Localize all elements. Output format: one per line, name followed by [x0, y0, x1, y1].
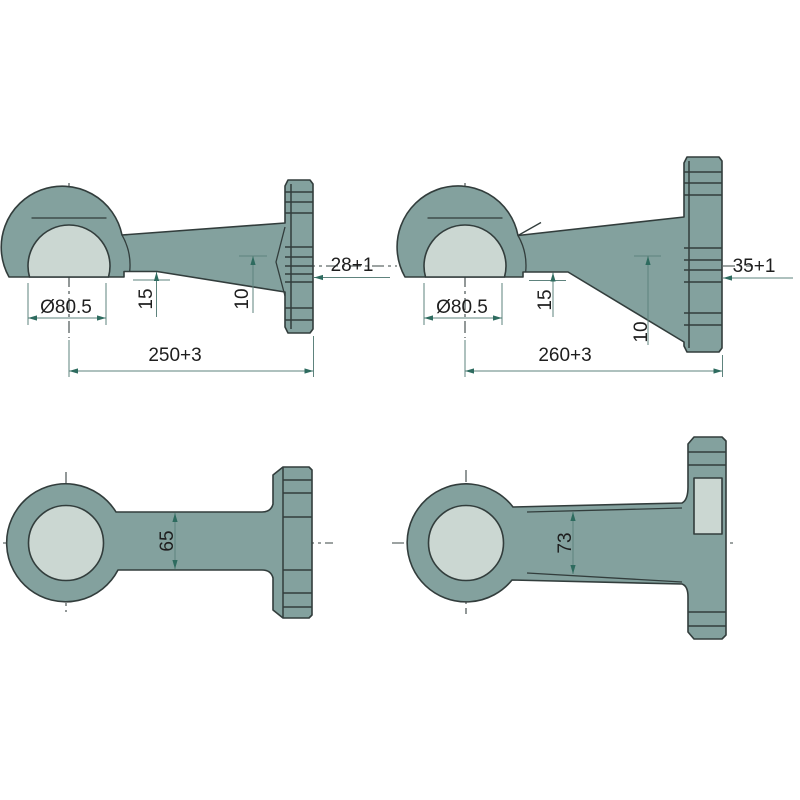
dim-label-15: 15 [136, 288, 157, 309]
flange-window-face [694, 478, 722, 534]
dimension-overall-length: 250+3 [69, 340, 314, 377]
dim-label-shaft-width: 65 [157, 530, 178, 551]
dim-label-shaft-width: 73 [555, 532, 576, 553]
dim-label-10: 10 [631, 321, 652, 342]
view-plan-a: 65 [3, 467, 333, 618]
arrow-left [28, 315, 37, 320]
bore-face [429, 506, 504, 581]
view-plan-b: 73 [392, 437, 736, 639]
arrow-left [424, 315, 433, 320]
dim-label-10: 10 [232, 288, 253, 309]
dimension-height-15: 15 [529, 273, 566, 318]
arrow-left [69, 368, 78, 373]
dimension-bore-diameter: Ø80.5 [424, 283, 502, 325]
arrow-right [97, 315, 106, 320]
dimension-flange-thickness: 35+1 [723, 256, 794, 377]
arrow-right [305, 368, 314, 373]
arrow-left [723, 275, 732, 280]
dim-label-diameter: Ø80.5 [436, 297, 488, 318]
arrow-up [154, 272, 159, 281]
arrow-right [714, 368, 723, 373]
dimension-flange-thickness: 28+1 [314, 255, 391, 377]
bore-face [29, 506, 104, 581]
arrow-left [314, 275, 323, 280]
dimension-bore-diameter: Ø80.5 [28, 283, 106, 325]
dim-label-flange-thickness: 35+1 [733, 256, 776, 277]
dim-label-flange-thickness: 28+1 [331, 255, 374, 276]
dim-label-length: 260+3 [538, 345, 591, 366]
arrow-up [550, 273, 555, 282]
arrow-left [465, 368, 474, 373]
dim-label-diameter: Ø80.5 [40, 297, 92, 318]
dimension-height-15: 15 [133, 272, 170, 317]
dim-label-length: 250+3 [148, 345, 201, 366]
dim-label-15: 15 [535, 289, 556, 310]
technical-drawing: Ø80.5 15 10 28+1 250+3 [0, 0, 800, 800]
technical-drawing-canvas: Ø80.5 15 10 28+1 250+3 [0, 0, 800, 800]
arrow-right [493, 315, 502, 320]
view-side-a: Ø80.5 15 10 28+1 250+3 [1, 180, 397, 377]
view-side-b: Ø80.5 15 10 35+1 260+3 [397, 157, 793, 377]
